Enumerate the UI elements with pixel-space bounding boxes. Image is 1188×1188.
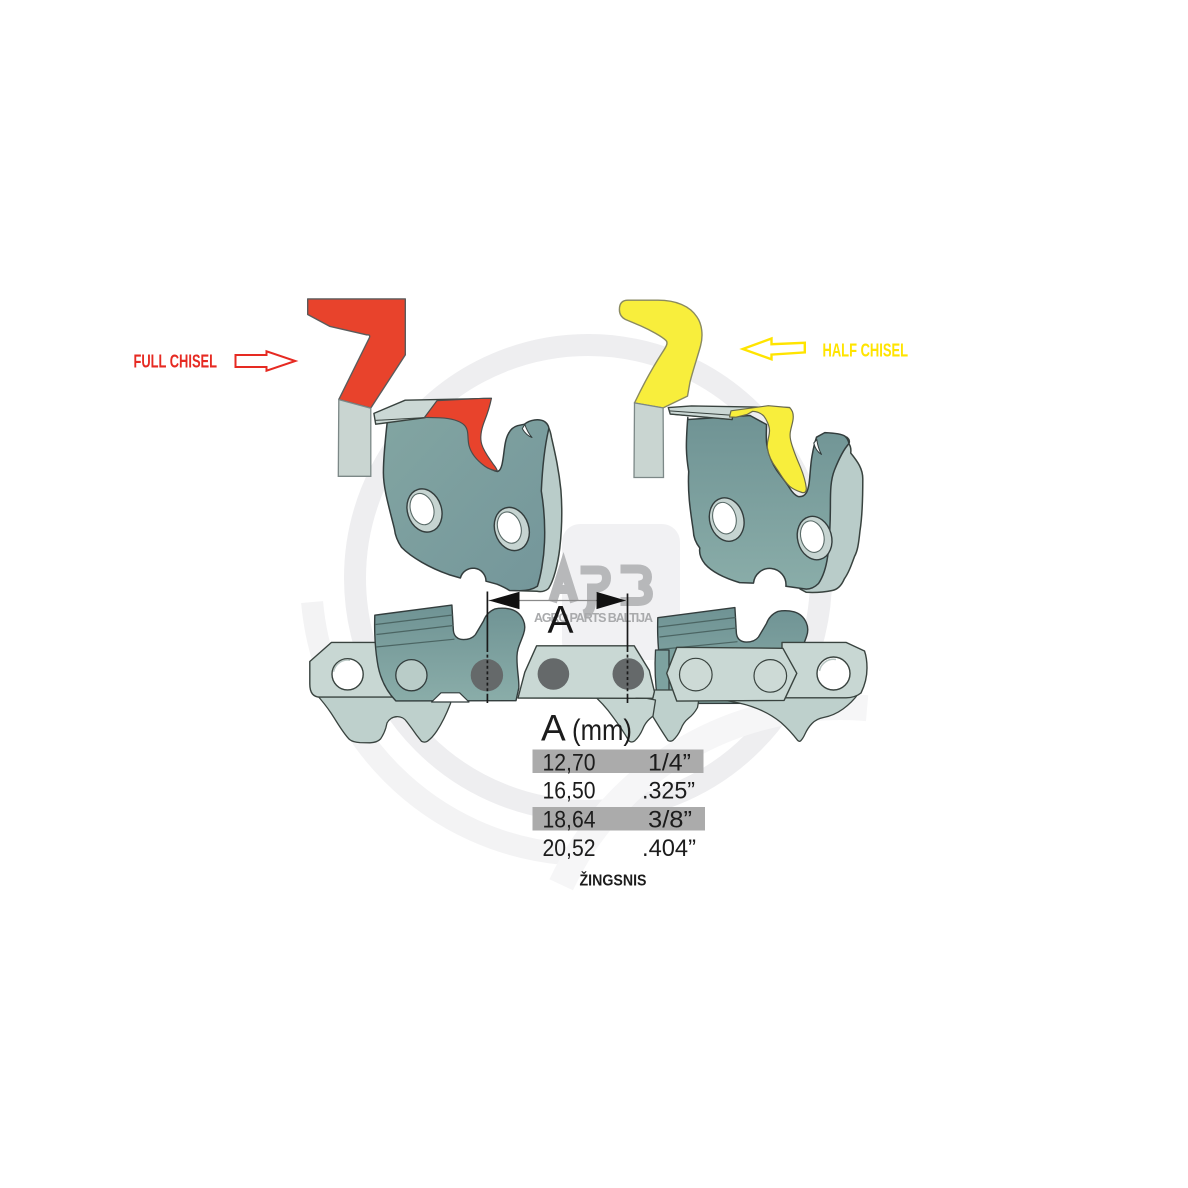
svg-text:1/4”: 1/4” [648, 750, 691, 777]
svg-text:.404”: .404” [642, 835, 696, 862]
svg-text:(mm): (mm) [572, 714, 632, 747]
svg-text:HALF CHISEL: HALF CHISEL [823, 341, 909, 361]
svg-text:12,70: 12,70 [543, 750, 596, 777]
svg-text:A: A [541, 708, 566, 749]
svg-text:FULL CHISEL: FULL CHISEL [134, 352, 218, 372]
svg-text:ŽINGSNIS: ŽINGSNIS [580, 872, 647, 890]
svg-text:16,50: 16,50 [543, 778, 596, 805]
svg-text:.325”: .325” [642, 778, 695, 805]
svg-text:3/8”: 3/8” [648, 807, 692, 834]
svg-text:20,52: 20,52 [543, 835, 596, 862]
svg-text:A: A [547, 599, 573, 642]
svg-text:18,64: 18,64 [543, 807, 596, 834]
